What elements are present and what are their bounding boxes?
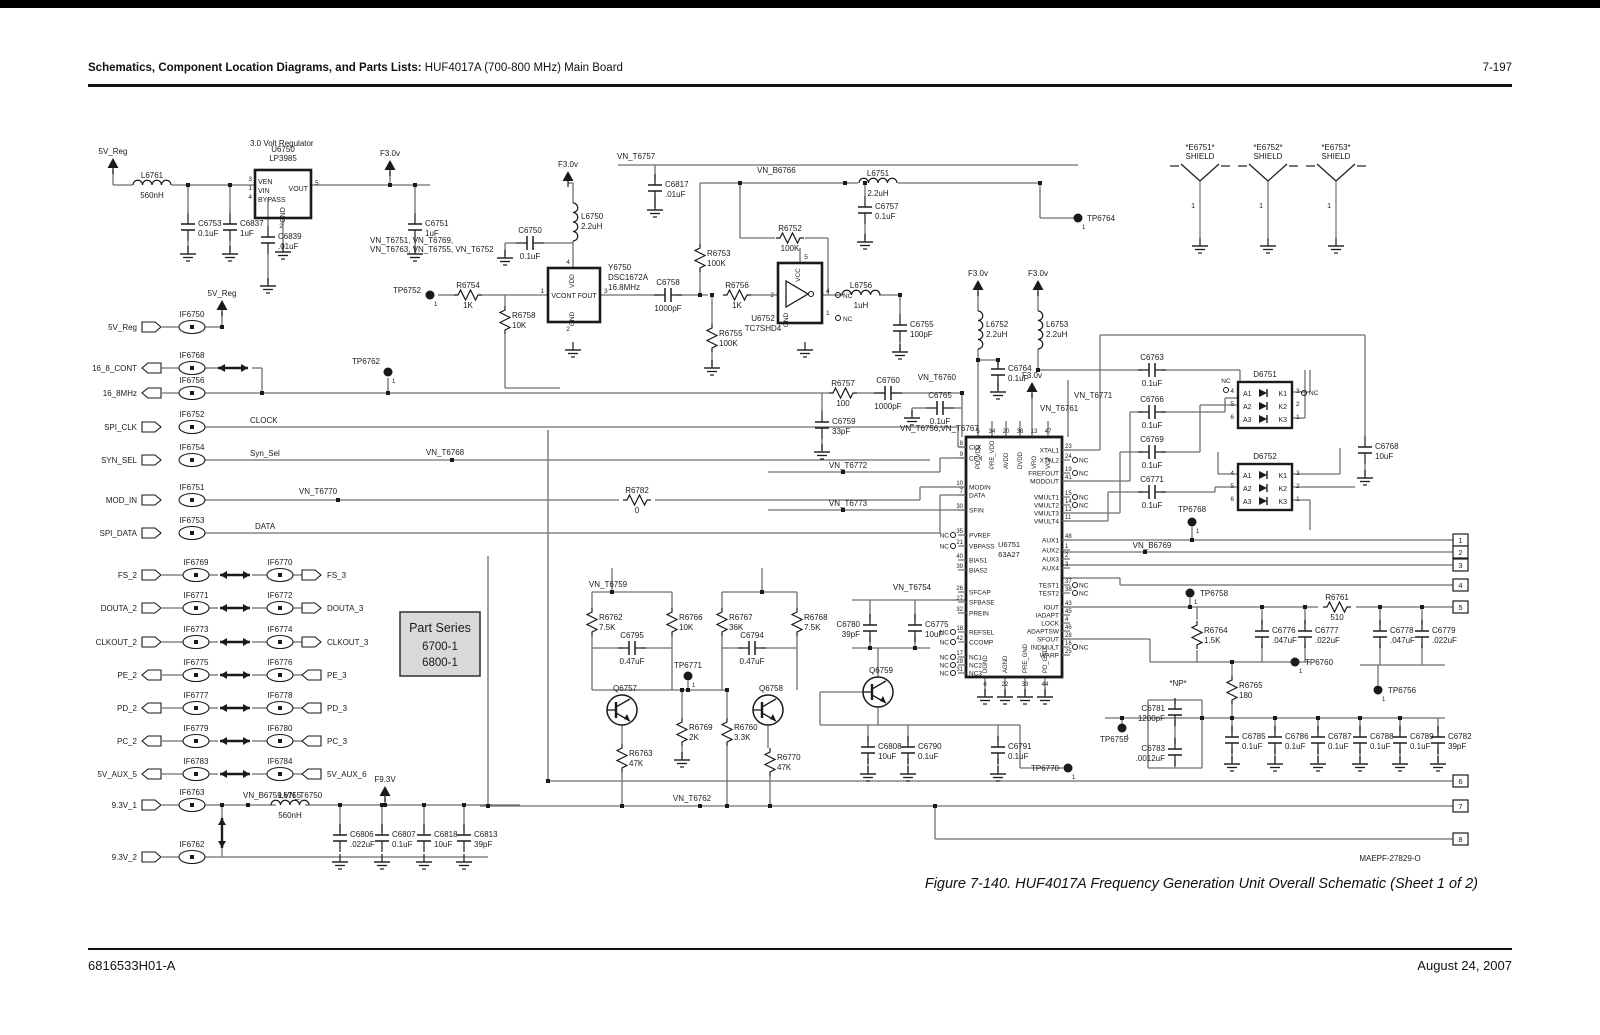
net-label: VN_T6760 xyxy=(918,373,957,382)
pin-number: 36 xyxy=(1017,429,1024,435)
resistor-R6762: R67627.5K xyxy=(587,608,623,636)
sheet-terminal-7: 7 xyxy=(1453,800,1468,812)
resistor-value: 47K xyxy=(629,759,644,768)
junction-dot xyxy=(338,803,342,807)
capacitor-name: C6786 xyxy=(1285,732,1309,741)
capacitor-value: 0.1uF xyxy=(875,212,896,221)
ground-symbol-icon xyxy=(704,360,720,375)
pin-number: 11 xyxy=(1065,515,1072,521)
nc-label: NC xyxy=(940,663,950,670)
junction-dot xyxy=(610,590,614,594)
connector-5V_AUX_5: 5V_AUX_5 xyxy=(97,769,161,779)
junction-dot xyxy=(868,646,872,650)
jumper-IF6783: IF6783 xyxy=(183,757,209,781)
pin-number: 1 xyxy=(826,310,830,317)
pin-number: 12 xyxy=(1065,507,1072,513)
part-series-title: Part Series xyxy=(409,621,471,635)
diode-cathode-label: K1 xyxy=(1278,473,1287,480)
pin-number: 48 xyxy=(1065,534,1072,540)
jumper-IF6752: IF6752 xyxy=(179,410,205,434)
capacitor-name: C6769 xyxy=(1140,435,1164,444)
capacitor-value: .022uF xyxy=(1432,636,1457,645)
net-label: VN_T6772 xyxy=(829,461,868,470)
junction-dot xyxy=(1143,550,1147,554)
resistor-R6761: R6761510 xyxy=(1323,593,1351,622)
connector-label: CLKOUT_2 xyxy=(96,638,138,647)
jumper-IF6754: IF6754 xyxy=(179,443,205,467)
capacitor-value: .01uF xyxy=(278,242,299,251)
jumper-label: IF6753 xyxy=(180,516,205,525)
ground-symbol-icon xyxy=(565,342,581,357)
transistor-label: Q6758 xyxy=(759,684,784,693)
pin-name: VCC xyxy=(795,268,802,282)
capacitor-name: C6795 xyxy=(620,631,644,640)
resistor-R6760: R67603.3K xyxy=(722,718,758,746)
nc-label: NC xyxy=(940,640,950,647)
pin-number: 2 xyxy=(770,292,774,299)
connector-label: SPI_DATA xyxy=(100,529,138,538)
ground-symbol-icon xyxy=(260,278,276,293)
capacitor-C6795: C67950.47uF xyxy=(618,631,646,666)
connector-PC_2: PC_2 xyxy=(117,736,161,746)
diode-pin-number: 6 xyxy=(1230,414,1234,421)
ic-name: U6752 xyxy=(751,314,775,323)
resistor-name: R6767 xyxy=(729,613,753,622)
capacitor-name: C6775 xyxy=(925,620,949,629)
capacitor-C6758: C67581000pF xyxy=(654,278,682,313)
wire xyxy=(762,699,776,707)
ground-symbol-icon xyxy=(180,246,196,261)
part-series-box: Part Series6700-16800-1 xyxy=(400,612,480,676)
capacitor-name: C6764 xyxy=(1008,364,1032,373)
capacitor-name: C6785 xyxy=(1242,732,1266,741)
testpoint-TP6756: TP67561 xyxy=(1374,686,1417,704)
testpoint-pin: 1 xyxy=(1082,225,1086,231)
nc-label: NC xyxy=(940,630,950,637)
connector-SPI_CLK: SPI_CLK xyxy=(104,422,161,432)
pin-name: VEN xyxy=(258,179,272,186)
jumper-label: IF6783 xyxy=(184,757,209,766)
connector-label: PD_2 xyxy=(117,704,138,713)
junction-dot xyxy=(450,458,454,462)
junction-dot xyxy=(1420,605,1424,609)
shield-sub: SHIELD xyxy=(1322,152,1351,161)
junction-dot xyxy=(336,498,340,502)
link-arrow-icon xyxy=(220,770,250,778)
capacitor-C6783: C6783.0012uF xyxy=(1136,738,1182,766)
connector-label: SYN_SEL xyxy=(101,456,138,465)
capacitor-C6782: C678239pF xyxy=(1431,726,1472,754)
jumper-IF6771: IF6771 xyxy=(183,591,209,615)
shield-name: *E6753* xyxy=(1321,143,1350,152)
connector-CLKOUT_3: CLKOUT_3 xyxy=(302,637,369,647)
inductor-name: L6750 xyxy=(581,212,604,221)
capacitor-value: 0.1uF xyxy=(1142,421,1163,430)
net-label: Syn_Sel xyxy=(250,449,280,458)
ground-symbol-icon xyxy=(1328,238,1344,253)
junction-dot xyxy=(698,804,702,808)
shield-sub: SHIELD xyxy=(1186,152,1215,161)
pin-number: 5 xyxy=(315,180,319,187)
resistor-name: R6758 xyxy=(512,311,536,320)
testpoint-label: TP6771 xyxy=(674,661,703,670)
terminal-number: 3 xyxy=(1458,561,1462,570)
diode-pin-number: 5 xyxy=(1230,401,1234,408)
power-net-label: F3.0v xyxy=(1028,269,1048,278)
testpoint-pin: 1 xyxy=(1299,669,1303,675)
osc-name: Y6750 xyxy=(608,263,632,272)
jumper-IF6762: IF6762 xyxy=(179,840,205,864)
pin-name: SFBASE xyxy=(969,600,995,607)
testpoint-TP6758: TP67581 xyxy=(1186,589,1229,607)
diode-anode-label: A1 xyxy=(1243,473,1252,480)
resistor-name: R6766 xyxy=(679,613,703,622)
terminal-number: 4 xyxy=(1458,581,1462,590)
pin-number: 22 xyxy=(1002,682,1009,688)
pin-number: 16 xyxy=(1065,641,1072,647)
junction-dot xyxy=(898,293,902,297)
ic-U6752: VCC5GND241NCNCU6752TC7SHD4 xyxy=(745,254,853,333)
jumper-label: IF6779 xyxy=(184,724,209,733)
pin-name: VMULT3 xyxy=(1034,511,1060,518)
ground-symbol-icon xyxy=(1017,689,1033,704)
jumper-label: IF6773 xyxy=(184,625,209,634)
connector-label: FS_2 xyxy=(118,571,138,580)
net-label: VN_T6762 xyxy=(673,794,712,803)
sheet-terminal-6: 6 xyxy=(1453,775,1468,787)
pin-number: 28 xyxy=(1065,633,1072,639)
jumper-IF6778: IF6778 xyxy=(267,691,293,715)
ground-symbol-icon xyxy=(814,444,830,459)
capacitor-C6757: C67570.1uF xyxy=(858,196,899,224)
capacitor-C6818: C681810uF xyxy=(417,824,458,852)
pin-name: AUX1 xyxy=(1042,538,1059,545)
ground-symbol-icon xyxy=(904,410,920,425)
junction-dot xyxy=(1273,716,1277,720)
connector-DOUTA_2: DOUTA_2 xyxy=(101,603,161,613)
capacitor-C6753: C67530.1uF xyxy=(181,213,222,241)
capacitor-C6817: C6817.01uF xyxy=(648,174,689,202)
resistor-R6769: R67692K xyxy=(677,718,713,746)
pin-number: 7 xyxy=(960,489,964,495)
capacitor-C6839: C6839.01uF xyxy=(261,226,302,254)
connector-label: 9.3V_2 xyxy=(112,853,138,862)
resistor-value: 1K xyxy=(732,301,742,310)
capacitor-name: C6794 xyxy=(740,631,764,640)
junction-dot xyxy=(228,183,232,187)
pin-name: GND xyxy=(280,207,287,223)
shield-name: *E6752* xyxy=(1253,143,1282,152)
capacitor-value: 100pF xyxy=(910,330,933,339)
capacitor-value: 39pF xyxy=(842,630,860,639)
sheet-terminal-5: 5 xyxy=(1453,601,1468,613)
diode-pack-D6751: D6751A1K143A2K252A3K361NCNC xyxy=(1221,370,1318,428)
jumper-label: IF6751 xyxy=(180,483,205,492)
ground-symbol-icon xyxy=(456,854,472,869)
jumper-label: IF6780 xyxy=(268,724,293,733)
junction-dot xyxy=(768,804,772,808)
capacitor-name: C6813 xyxy=(474,830,498,839)
capacitor-value: 1uF xyxy=(240,229,254,238)
pin-name: BIAS2 xyxy=(969,568,988,575)
wire xyxy=(1336,164,1355,181)
capacitor-value: 0.1uF xyxy=(1142,501,1163,510)
nc-label: NC xyxy=(1079,458,1089,465)
testpoint-pin: 1 xyxy=(392,379,396,385)
inductor-value: 1uH xyxy=(854,301,869,310)
diode-pack-D6752: D6752A1K143A2K252A3K361 xyxy=(1230,452,1300,510)
ground-symbol-icon xyxy=(674,752,690,767)
osc-part: DSC1672A xyxy=(608,273,649,282)
pin-number: 20 xyxy=(1003,429,1010,435)
pin-name: NC1 xyxy=(969,655,982,662)
capacitor-value: 0.1uF xyxy=(1370,742,1391,751)
pin-name: SFIN xyxy=(969,508,984,515)
pin-name: VOUT xyxy=(289,186,309,193)
net-label: VN_T6773 xyxy=(829,499,868,508)
pin-name: VBPASS xyxy=(969,544,995,551)
wire xyxy=(616,699,630,707)
resistor-value: 100K xyxy=(719,339,738,348)
nc-label: NC xyxy=(843,293,853,300)
resistor-value: 47K xyxy=(777,763,792,772)
junction-dot xyxy=(220,325,224,329)
pin-name: PD_VDD xyxy=(976,444,982,469)
net-label: VN_B6759,VN_T6750 xyxy=(243,791,323,800)
junction-dot xyxy=(1230,660,1234,664)
connector-label: PC_2 xyxy=(117,737,138,746)
capacitor-name: C6776 xyxy=(1272,626,1296,635)
connector-9.3V_2: 9.3V_2 xyxy=(112,852,161,862)
resistor-value: 0 xyxy=(635,506,640,515)
pin-number: 32 xyxy=(956,607,963,613)
diode-cathode-label: K3 xyxy=(1278,499,1287,506)
ic-part: 63A27 xyxy=(998,550,1020,559)
resistor-R6757: R6757100 xyxy=(829,379,857,408)
power-net-label: 5V_Reg xyxy=(99,147,128,156)
pin-number: 2 xyxy=(1065,553,1069,559)
inductor-value: 2.2uH xyxy=(986,330,1008,339)
pin-name: PREIN xyxy=(969,611,989,618)
resistor-R6766: R676610K xyxy=(667,608,703,636)
net-label: VN_T6751, VN_T6769, xyxy=(370,236,453,245)
pin-name: MODOUT xyxy=(1030,479,1059,486)
ground-symbol-icon xyxy=(990,384,1006,399)
connector-PC_3: PC_3 xyxy=(302,736,348,746)
jumper-IF6773: IF6773 xyxy=(183,625,209,649)
capacitor-name: C6782 xyxy=(1448,732,1472,741)
pin-number: 23 xyxy=(1065,444,1072,450)
ground-symbol-icon xyxy=(1037,689,1053,704)
junction-dot xyxy=(1260,605,1264,609)
sheet-terminal-3: 3 xyxy=(1453,559,1468,571)
pin-name: TEST1 xyxy=(1039,583,1060,590)
pin-name: VMULT1 xyxy=(1034,495,1060,502)
pin-number: 26 xyxy=(956,586,963,592)
pin-number: 19 xyxy=(1065,467,1072,473)
terminal-number: 2 xyxy=(1458,548,1462,557)
connector-label: 5V_Reg xyxy=(108,323,137,332)
pin-number: 39 xyxy=(956,564,963,570)
power-arrow-icon: F3.0v xyxy=(968,269,988,296)
transistor-label: Q6759 xyxy=(869,666,894,675)
testpoint-pin: 1 xyxy=(1196,529,1200,535)
terminal-number: 6 xyxy=(1458,777,1462,786)
pin-name: FREFOUT xyxy=(1028,471,1059,478)
junction-dot xyxy=(841,470,845,474)
ground-symbol-icon xyxy=(1224,756,1240,771)
capacitor-name: C6771 xyxy=(1140,475,1164,484)
capacitor-C6787: C67870.1uF xyxy=(1311,726,1352,754)
inductor-L6752: L67522.2uH xyxy=(978,311,1009,349)
capacitor-name: C6765 xyxy=(928,391,952,400)
pin-number: 1 xyxy=(248,185,252,192)
diode-pin-number: 3 xyxy=(1296,388,1300,395)
pin-number: 40 xyxy=(956,554,963,560)
capacitor-name: C6760 xyxy=(876,376,900,385)
jumper-label: IF6762 xyxy=(180,840,205,849)
connector-FS_3: FS_3 xyxy=(302,570,347,580)
pin-number: 1 xyxy=(1065,544,1069,550)
pin-name: IOUT xyxy=(1043,605,1059,612)
connector-16_8MHz: 16_8MHz xyxy=(103,388,161,398)
jumper-label: IF6750 xyxy=(180,310,205,319)
pin-number: 4 xyxy=(248,194,252,201)
capacitor-value: 0.1uF xyxy=(1410,742,1431,751)
pin-number: 24 xyxy=(1065,454,1072,460)
junction-dot xyxy=(680,688,684,692)
capacitor-value: 39pF xyxy=(474,840,492,849)
ground-symbol-icon xyxy=(860,766,876,781)
diode-pin-number: 1 xyxy=(1296,496,1300,503)
diode-pin-number: 6 xyxy=(1230,496,1234,503)
capacitor-value: 33pF xyxy=(832,427,850,436)
resistor-R6765: R6765180 xyxy=(1227,676,1263,704)
capacitor-value: 0.1uF xyxy=(1328,742,1349,751)
inductor-value: 2.2uH xyxy=(1046,330,1068,339)
pin-name: PRE_GND xyxy=(1023,643,1029,673)
pin-name: PRE_VDD xyxy=(990,440,996,469)
pin-name: AUX3 xyxy=(1042,557,1059,564)
connector-PD_2: PD_2 xyxy=(117,703,161,713)
pin-name: ADAPTSW xyxy=(1027,629,1060,636)
capacitor-value: 10uF xyxy=(434,840,452,849)
net-label: VN_T6756,VN_T6767 xyxy=(900,424,979,433)
resistor-name: R6760 xyxy=(734,723,758,732)
nc-label: NC xyxy=(1079,645,1089,652)
pin-number: 45 xyxy=(1065,609,1072,615)
part-series-line: 6700-1 xyxy=(422,641,458,653)
pin-number: 33 xyxy=(1022,682,1029,688)
nc-label: NC xyxy=(1079,495,1089,502)
nc-label: NC xyxy=(1079,591,1089,598)
testpoint-TP6752: TP67521 xyxy=(393,286,438,308)
capacitor-C6808: C680810uF xyxy=(861,736,902,764)
jumper-label: IF6771 xyxy=(184,591,209,600)
jumper-label: IF6774 xyxy=(268,625,293,634)
connector-label: DOUTA_3 xyxy=(327,604,364,613)
resistor-name: R6761 xyxy=(1325,593,1349,602)
power-arrow-icon: F3.0v xyxy=(380,149,400,176)
net-label: VN_T6763, VN_T6755, VN_T6752 xyxy=(370,245,494,254)
ground-symbol-icon xyxy=(900,766,916,781)
capacitor-C6790: C67900.1uF xyxy=(901,736,942,764)
diode-pin-number: 4 xyxy=(1230,470,1234,477)
pin-number: 30 xyxy=(956,504,963,510)
connector-label: PD_3 xyxy=(327,704,348,713)
junction-dot xyxy=(698,293,702,297)
resistor-name: R6770 xyxy=(777,753,801,762)
jumper-IF6780: IF6780 xyxy=(267,724,293,748)
pin-number: 29 xyxy=(956,659,963,665)
capacitor-name: C6751 xyxy=(425,219,449,228)
resistor-value: 7.5K xyxy=(804,623,821,632)
pin-name: VIN xyxy=(258,188,270,195)
pin-name: AUX4 xyxy=(1042,566,1059,573)
ic-part: LP3985 xyxy=(269,154,297,163)
net-label: VN_T6757 xyxy=(617,152,656,161)
testpoint-label: TP6756 xyxy=(1388,686,1417,695)
ground-symbol-icon xyxy=(797,342,813,357)
resistor-R6782: R67820 xyxy=(623,486,651,515)
resistor-value: 180 xyxy=(1239,691,1253,700)
pin-name: AUX2 xyxy=(1042,548,1059,555)
pin-name: LOCK xyxy=(1041,621,1059,628)
junction-dot xyxy=(1190,538,1194,542)
jumper-label: IF6778 xyxy=(268,691,293,700)
jumper-IF6772: IF6772 xyxy=(267,591,293,615)
junction-dot xyxy=(976,358,980,362)
resistor-R6754: R67541K xyxy=(454,281,482,310)
resistor-name: R6768 xyxy=(804,613,828,622)
resistor-name: R6765 xyxy=(1239,681,1263,690)
capacitor-name: C6806 xyxy=(350,830,374,839)
capacitor-C6789: C67890.1uF xyxy=(1393,726,1434,754)
power-net-label: F3.0v xyxy=(968,269,988,278)
diode-cathode-label: K1 xyxy=(1278,391,1287,398)
capacitor-name: C6779 xyxy=(1432,626,1456,635)
capacitor-name: C6808 xyxy=(878,742,902,751)
ground-symbol-icon xyxy=(1310,756,1326,771)
transistor-Q6758: Q6758 xyxy=(753,684,784,725)
pin-number: 1 xyxy=(540,288,544,295)
shield-E6753: *E6753*SHIELD1 xyxy=(1306,143,1366,238)
power-net-label: F3.0v xyxy=(380,149,400,158)
ground-symbol-icon xyxy=(222,246,238,261)
capacitor-value: 1000pF xyxy=(874,402,901,411)
pin-name: VCP xyxy=(1046,457,1052,469)
junction-dot xyxy=(933,804,937,808)
capacitor-value: 0.1uF xyxy=(1242,742,1263,751)
resistor-name: R6757 xyxy=(831,379,855,388)
pin-number: 38 xyxy=(1065,587,1072,593)
jumper-label: IF6770 xyxy=(268,558,293,567)
footer-rule xyxy=(88,948,1512,950)
resistor-name: R6763 xyxy=(629,749,653,758)
capacitor-C6763: C67630.1uF xyxy=(1138,353,1166,388)
nc-label: NC xyxy=(940,533,950,540)
link-arrow-icon xyxy=(220,704,250,712)
junction-dot xyxy=(1398,716,1402,720)
diode-anode-label: A3 xyxy=(1243,499,1252,506)
resistor-R6758: R675810K xyxy=(500,306,536,334)
connector-SYN_SEL: SYN_SEL xyxy=(101,455,161,465)
diode-pin-number: 2 xyxy=(1296,401,1300,408)
capacitor-C6778: C6778.047uF xyxy=(1373,620,1415,648)
net-label: VN_T6768 xyxy=(426,448,465,457)
diode-anode-label: A1 xyxy=(1243,391,1252,398)
pin-number: 4 xyxy=(826,288,830,295)
